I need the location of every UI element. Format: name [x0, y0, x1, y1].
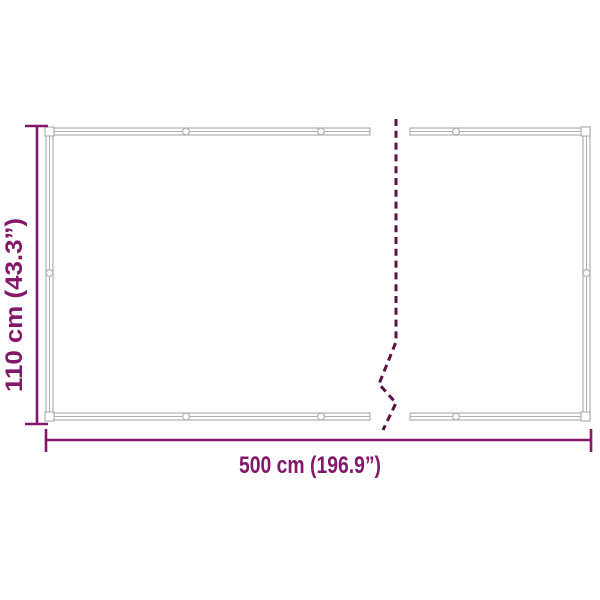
grommet-bottom-1 — [183, 413, 190, 420]
grommet-top-2 — [318, 128, 325, 135]
height-dimension: 110 cm (43.3”) — [1, 126, 48, 424]
grommet-top-1 — [183, 128, 190, 135]
corner-cap-bottom-right — [581, 412, 590, 421]
corner-cap-bottom-left — [45, 412, 54, 421]
corner-cap-top-right — [581, 127, 590, 136]
width-dimension: 500 cm (196.9”) — [46, 429, 591, 479]
product-frame — [45, 127, 590, 421]
grommet-bottom-3 — [453, 413, 460, 420]
grommet-top-3 — [453, 128, 460, 135]
grommet-right-middle — [583, 270, 590, 277]
width-label: 500 cm (196.9”) — [239, 452, 381, 479]
grommet-bottom-2 — [318, 413, 325, 420]
grommet-left-middle — [46, 270, 53, 277]
dimension-diagram: 110 cm (43.3”) 500 cm (196.9”) — [0, 0, 600, 600]
diagram-canvas: 110 cm (43.3”) 500 cm (196.9”) — [0, 0, 600, 600]
corner-cap-top-left — [45, 127, 54, 136]
height-label: 110 cm (43.3”) — [1, 218, 28, 392]
break-line — [379, 119, 396, 430]
